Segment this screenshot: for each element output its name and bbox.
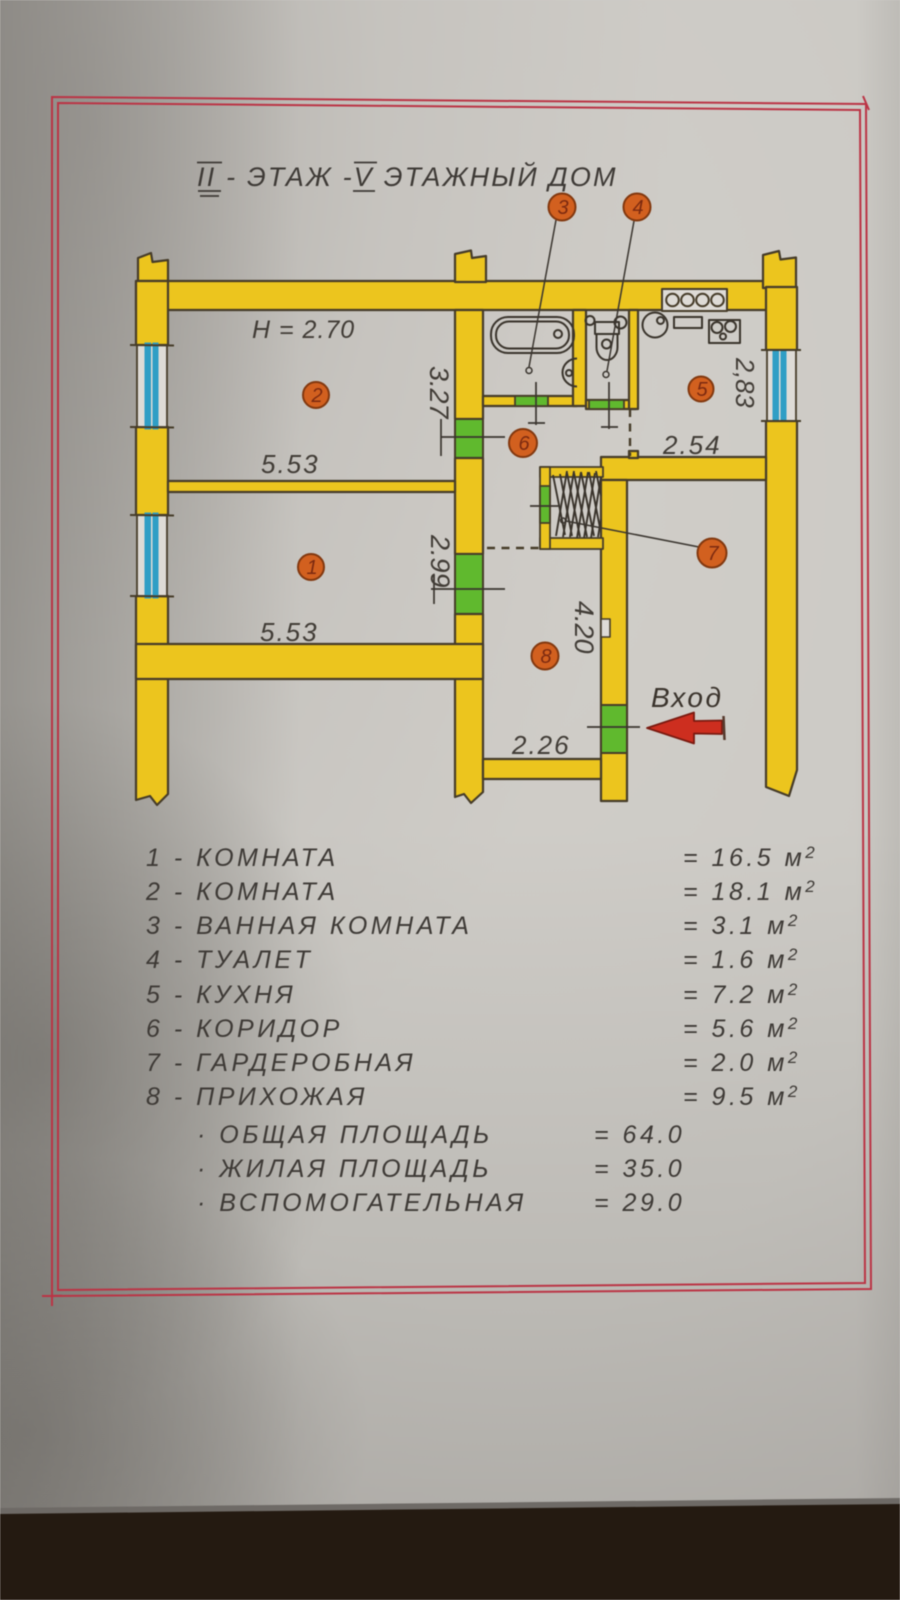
svg-text:5 - КУХНЯ: 5 - КУХНЯ	[146, 981, 296, 1009]
svg-text:5.53: 5.53	[261, 449, 320, 479]
svg-text:6: 6	[518, 433, 530, 455]
svg-text:2.99: 2.99	[425, 534, 455, 588]
svg-text:8: 8	[540, 646, 551, 668]
svg-text:3: 3	[557, 197, 568, 219]
svg-text:2.54: 2.54	[662, 430, 722, 460]
svg-text:= 3.1 м2: = 3.1 м2	[683, 911, 801, 940]
svg-text:5: 5	[696, 379, 708, 401]
svg-text:2.26: 2.26	[511, 730, 571, 760]
svg-text:= 2.0 м2: = 2.0 м2	[683, 1048, 801, 1077]
svg-text:· ЖИЛАЯ ПЛОЩАДЬ: · ЖИЛАЯ ПЛОЩАДЬ	[197, 1155, 492, 1183]
svg-text:= 9.5 м2: = 9.5 м2	[683, 1082, 801, 1111]
svg-text:= 35.0: = 35.0	[594, 1155, 685, 1183]
svg-text:= 64.0: = 64.0	[594, 1121, 685, 1149]
svg-text:7: 7	[707, 543, 719, 565]
svg-text:2,83: 2,83	[730, 357, 758, 408]
svg-text:8 - ПРИХОЖАЯ: 8 - ПРИХОЖАЯ	[146, 1083, 368, 1111]
svg-text:Вход: Вход	[651, 682, 723, 713]
svg-text:= 29.0: = 29.0	[594, 1189, 685, 1217]
svg-text:= 7.2 м2: = 7.2 м2	[683, 980, 801, 1009]
svg-text:5.53: 5.53	[260, 617, 319, 647]
svg-text:4: 4	[632, 197, 643, 219]
svg-text:· ВСПОМОГАТЕЛЬНАЯ: · ВСПОМОГАТЕЛЬНАЯ	[197, 1189, 527, 1217]
svg-text:= 5.6 м2: = 5.6 м2	[683, 1014, 801, 1043]
svg-text:1 - КОМНАТА: 1 - КОМНАТА	[146, 844, 339, 872]
svg-text:3 - ВАННАЯ КОМНАТА: 3 - ВАННАЯ КОМНАТА	[146, 912, 472, 940]
svg-text:4.20: 4.20	[569, 601, 599, 654]
svg-text:7 - ГАРДЕРОБНАЯ: 7 - ГАРДЕРОБНАЯ	[146, 1049, 416, 1077]
svg-text:H = 2.70: H = 2.70	[252, 316, 355, 344]
svg-text:= 18.1 м2: = 18.1 м2	[683, 877, 818, 906]
svg-text:1: 1	[306, 557, 317, 579]
svg-text:· ОБЩАЯ ПЛОЩАДЬ: · ОБЩАЯ ПЛОЩАДЬ	[197, 1121, 493, 1149]
svg-text:6 - КОРИДОР: 6 - КОРИДОР	[146, 1015, 343, 1043]
svg-text:2 - КОМНАТА: 2 - КОМНАТА	[145, 878, 339, 906]
svg-text:3.27: 3.27	[424, 366, 454, 420]
svg-text:2: 2	[310, 385, 322, 407]
svg-text:4 - ТУАЛЕТ: 4 - ТУАЛЕТ	[146, 946, 313, 974]
svg-text:= 16.5 м2: = 16.5 м2	[683, 843, 818, 872]
svg-text:II - ЭТАЖ -V ЭТАЖНЫЙ ДОМ: II - ЭТАЖ -V ЭТАЖНЫЙ ДОМ	[197, 160, 618, 192]
svg-text:= 1.6 м2: = 1.6 м2	[683, 945, 801, 974]
